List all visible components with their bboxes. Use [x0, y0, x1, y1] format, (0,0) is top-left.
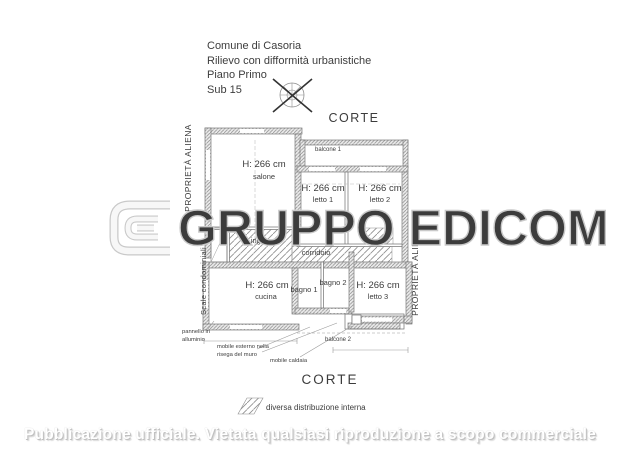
- watermark-text: GRUPPO EDICOM: [178, 200, 609, 256]
- watermark: GRUPPO EDICOM: [114, 200, 609, 256]
- watermark-layer: GRUPPO EDICOM: [0, 0, 620, 450]
- footer-notice: Pubblicazione ufficiale. Vietata qualsia…: [0, 426, 620, 448]
- edicom-logo-icon: [114, 205, 170, 251]
- floor-plan-document: Comune di Casoria Rilievo con difformità…: [0, 0, 620, 450]
